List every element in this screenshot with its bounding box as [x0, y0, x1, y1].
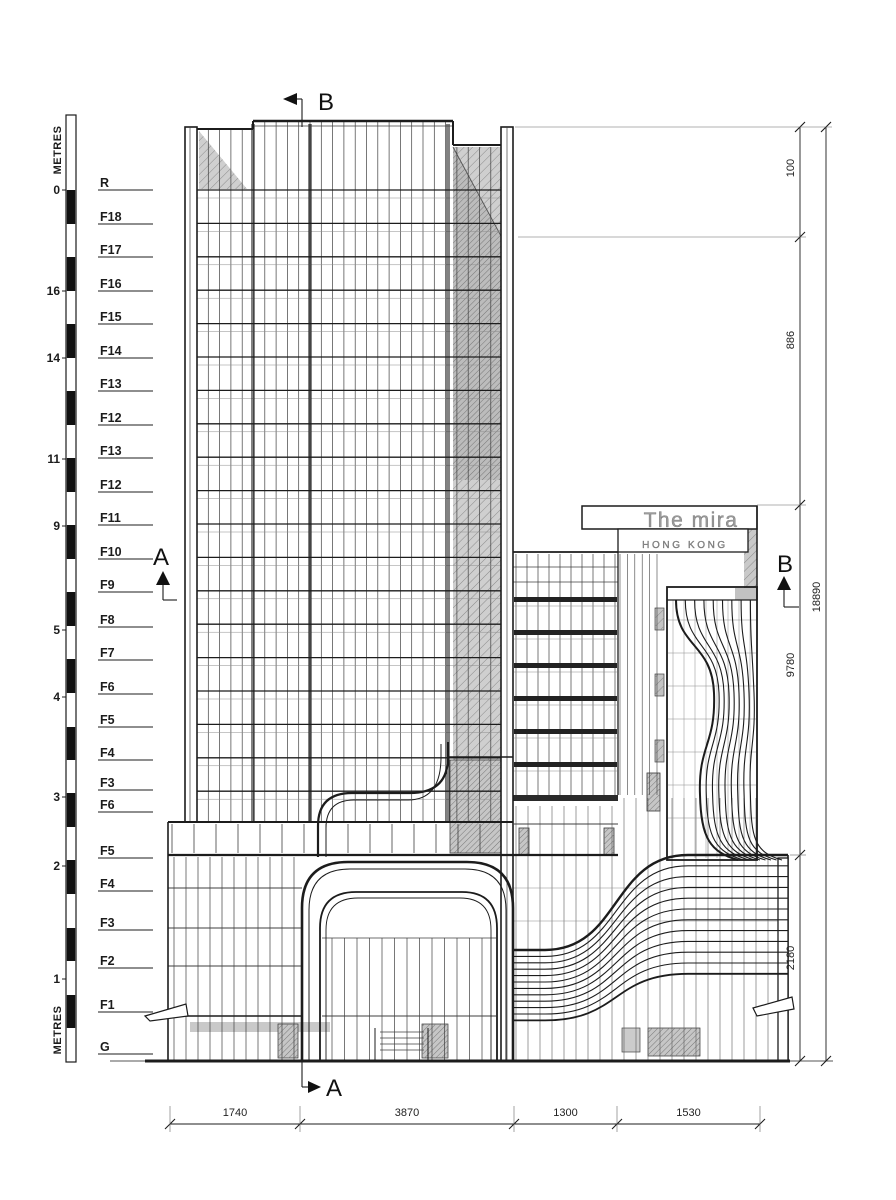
wave-band-line	[513, 898, 788, 975]
floor-label: F4	[100, 877, 115, 891]
hotel-sign-subtitle: HONG KONG	[642, 540, 728, 551]
floor-label: F5	[100, 713, 115, 727]
louver-band	[514, 630, 617, 635]
wave-band-line	[513, 855, 788, 950]
dim-label-bottom: 1530	[676, 1107, 700, 1119]
scale-bar-segment	[67, 860, 75, 894]
scale-bar-segment	[67, 324, 75, 358]
swoosh-ribbon-line	[741, 600, 776, 860]
dim-label-right-inner: 886	[785, 331, 797, 349]
scale-bar-segment	[67, 727, 75, 760]
floor-label: F15	[100, 310, 122, 324]
floor-label: F8	[100, 613, 115, 627]
louver-tab-hatch	[655, 740, 664, 762]
section-arrow-right	[308, 1081, 321, 1093]
pillar-hatch	[647, 773, 660, 811]
left-pilaster	[185, 127, 197, 822]
scale-bar-segment	[67, 190, 75, 224]
entrance-frame-inner2	[326, 898, 491, 1061]
mid-dark-band	[513, 795, 618, 801]
louver-tab-hatch	[655, 674, 664, 696]
scale-tick-label: 3	[53, 790, 60, 804]
floor-label: F2	[100, 954, 115, 968]
floor-label: F6	[100, 680, 115, 694]
storefront-block-hatch	[422, 1024, 448, 1058]
dim-label-right-outer: 18890	[811, 582, 823, 613]
swoosh-ribbon-line	[750, 600, 782, 860]
louver-band	[514, 597, 617, 602]
tower-curve-inner	[326, 744, 441, 857]
wave-band-line	[513, 952, 788, 1007]
louver-tab-hatch	[655, 608, 664, 630]
floor-label: F1	[100, 998, 115, 1012]
floor-label: F14	[100, 344, 122, 358]
floor-label: F3	[100, 776, 115, 790]
scale-bar-segment	[67, 458, 75, 492]
swoosh-corner-shade	[735, 588, 757, 600]
floor-label: F3	[100, 916, 115, 930]
scale-tick-label: 0	[53, 183, 60, 197]
wave-band-line	[513, 887, 788, 969]
floor-label: F9	[100, 578, 115, 592]
scale-tick-label: 4	[53, 690, 60, 704]
floor-label: F13	[100, 377, 122, 391]
floor-label: F12	[100, 411, 122, 425]
dim-label-bottom: 3870	[395, 1107, 419, 1119]
section-letter-b-right: B	[777, 551, 793, 578]
louver-band	[514, 729, 617, 734]
swoosh-ribbon-line	[676, 600, 738, 860]
scale-bar-segment	[67, 793, 75, 827]
floor-label: R	[100, 176, 109, 190]
scale-tick-label: 14	[47, 351, 61, 365]
entrance-frame-inner	[320, 892, 497, 1061]
elevation-drawing: 0161411954321 RF18F17F16F15F14F13F12F13F…	[0, 0, 896, 1200]
floor-label: F5	[100, 844, 115, 858]
dim-label-bottom: 1300	[553, 1107, 577, 1119]
scale-bar: 0161411954321	[47, 115, 76, 1062]
scale-unit-top: METRES	[52, 126, 64, 175]
dim-label-right-inner: 9780	[785, 653, 797, 677]
scale-bar-segment	[67, 659, 75, 693]
scale-bar-segment	[67, 257, 75, 291]
floor-label: F4	[100, 746, 115, 760]
scale-unit-bottom: METRES	[52, 1006, 64, 1055]
dim-label-bottom: 1740	[223, 1107, 247, 1119]
floor-label: F17	[100, 243, 122, 257]
wave-band-line	[513, 866, 788, 957]
scale-tick-label: 9	[53, 519, 60, 533]
floor-label: F7	[100, 646, 115, 660]
dim-label-right-inner: 100	[785, 159, 797, 177]
scale-bar-segment	[67, 928, 75, 961]
section-arrow-up	[777, 576, 791, 590]
architectural-elevation-sheet: 0161411954321 RF18F17F16F15F14F13F12F13F…	[0, 0, 896, 1200]
section-arrow-left	[283, 93, 297, 105]
section-letter-a-left: A	[153, 544, 169, 571]
floor-label: F12	[100, 478, 122, 492]
scale-tick-label: 1	[53, 972, 60, 986]
floor-label: F18	[100, 210, 122, 224]
louver-band	[514, 696, 617, 701]
section-letter-a-bottom: A	[326, 1075, 342, 1102]
storefront-block	[622, 1028, 640, 1052]
hotel-sign-title: The mira	[644, 509, 739, 532]
storefront-block-hatch	[278, 1024, 298, 1058]
dim-label-right-inner: 2180	[785, 946, 797, 970]
scale-bar-segment	[67, 995, 75, 1028]
scale-bar-segment	[67, 525, 75, 559]
storefront-block-hatch	[648, 1028, 700, 1056]
scale-bar-segment	[67, 391, 75, 425]
floor-label: F16	[100, 277, 122, 291]
scale-bar-segment	[67, 592, 75, 626]
scale-tick-label: 2	[53, 859, 60, 873]
floor-label: G	[100, 1040, 110, 1054]
section-arrow-up	[156, 571, 170, 585]
pillar-hatch	[519, 828, 529, 855]
louver-band	[514, 663, 617, 668]
scale-tick-label: 5	[53, 623, 60, 637]
floor-labels: RF18F17F16F15F14F13F12F13F12F11F10F9F8F7…	[98, 176, 153, 1054]
pillar-hatch	[604, 828, 614, 855]
floor-label: F10	[100, 545, 122, 559]
section-letter-b-top: B	[318, 89, 334, 116]
notch-shadow-hatch	[199, 131, 247, 189]
floor-label: F6	[100, 798, 115, 812]
floor-label: F13	[100, 444, 122, 458]
scale-tick-label: 11	[47, 452, 60, 466]
floor-label: F11	[100, 511, 121, 525]
louver-band	[514, 762, 617, 767]
scale-tick-label: 16	[47, 284, 61, 298]
